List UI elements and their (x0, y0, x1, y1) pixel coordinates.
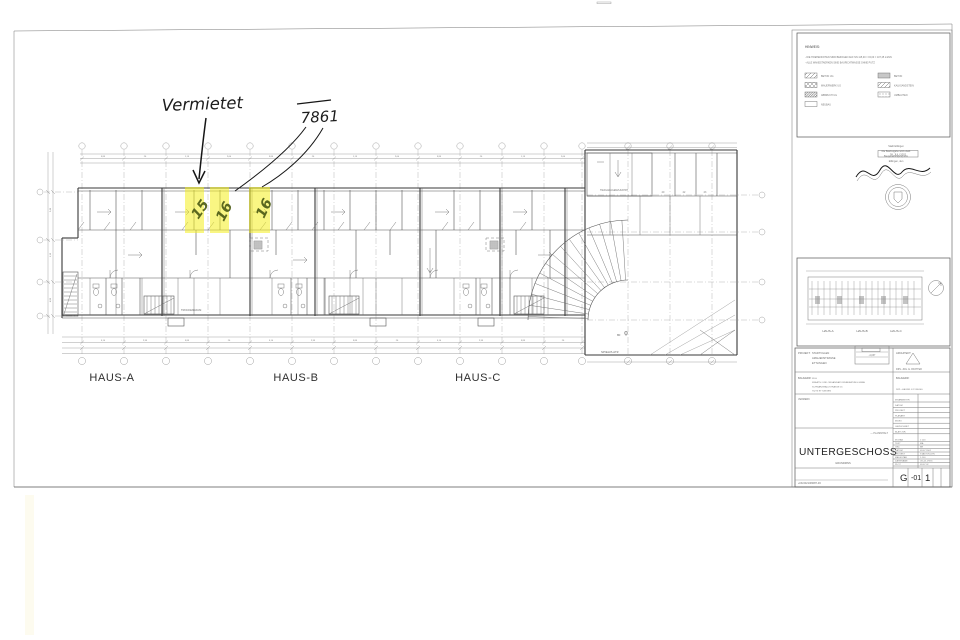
parking-stall-line (531, 294, 589, 310)
info-row-label: PLOT (895, 464, 901, 466)
grid-bubble-bottom (330, 357, 337, 364)
wc-tank (296, 284, 302, 288)
dim-text-top: 3,85 (101, 156, 106, 158)
parking-stall-line (611, 222, 621, 281)
dim-text-top: 26 (480, 156, 483, 158)
info-row-label: PROJEKT (895, 454, 906, 456)
parking-stall-line (579, 233, 609, 285)
bauherr-label: BAUHERR: (798, 376, 812, 380)
keyplan-cell (881, 296, 886, 304)
wc-tank (481, 284, 487, 288)
grid-bubble-top (499, 143, 505, 149)
grid-bubble-left (37, 279, 43, 285)
grid-bubble-top (163, 143, 169, 149)
grid-bubble-top (121, 143, 127, 149)
garage-entrance-label: TIEFGARAGENZUFAHRT (600, 189, 629, 192)
bauherr2-label: BAUHERR: (896, 376, 910, 380)
dim-text-top: 3,85 (269, 156, 274, 158)
index-row-label: PROJEKT (895, 410, 906, 412)
door-arc (270, 270, 278, 278)
grid-bubble-top (415, 143, 421, 149)
door-leaf (520, 222, 526, 230)
sink-fixture (486, 304, 490, 308)
legend-swatch (805, 92, 817, 97)
grid-bubble-top (373, 143, 379, 149)
wc-fixture (112, 289, 117, 296)
dim-text-bottom: 26 (396, 340, 399, 342)
legend-swatch (805, 83, 817, 88)
signature-stroke (856, 166, 930, 177)
dim-text-top: 1,15 (353, 156, 358, 158)
grid-bubble-bottom (372, 357, 379, 364)
plan-title: UNTERGESCHOSS (799, 447, 897, 458)
legend-item-label: KALKSANDSTEIN (894, 85, 914, 88)
info-row-value: MA (920, 442, 924, 445)
info-row-value: STADTVILLEN (920, 453, 935, 456)
grid-bubble-top (625, 143, 631, 149)
parking-stall-line (622, 220, 626, 280)
dim-text-top: 2,60 (561, 156, 566, 158)
door-arc (190, 270, 198, 278)
garage-cell-number: 20 (662, 191, 665, 194)
info-row-value: 1:100 (920, 440, 926, 442)
scan-artifact-strip (25, 495, 34, 635)
wc-fixture (94, 289, 99, 296)
price-overline (297, 100, 331, 104)
architekt-label: ARCHITEKT: (896, 351, 911, 355)
dim-text-top: 26 (144, 156, 147, 158)
legend-item-label: UMBAUTEN (894, 94, 908, 97)
haus-b-label: HAUS-B (273, 372, 318, 384)
info-row-label: M.STAB (895, 439, 904, 442)
projekt-label: PROJEKT: (798, 351, 811, 355)
spielplatz-label: SPIELPLATZ (601, 350, 619, 354)
legend-swatch (878, 73, 890, 78)
grid-bubble-right (759, 317, 765, 323)
door-arc (350, 270, 358, 278)
keyplan-haus-label: HAUS-C (890, 329, 902, 333)
grid-bubble-right (759, 279, 765, 285)
bauherr-line: 76275 ETTLINGEN (812, 391, 831, 393)
wc-tank (93, 284, 99, 288)
seal-outer-ring (886, 185, 911, 210)
ramp-inner-arc (588, 280, 628, 320)
info-row-label: DATUM (895, 449, 903, 452)
dim-text-bottom: 2,35 (311, 340, 316, 342)
dim-text-bottom: 5,10 (101, 340, 106, 342)
garage-cell-number: 23 (704, 191, 707, 194)
grid-bubble-bottom (288, 357, 295, 364)
legend-note: - ALLE WANDSTAERKEN SIND BAURICHTMASSE O… (805, 62, 875, 65)
parking-stall-line (535, 283, 591, 305)
projekt-line: STADTVILLEN (812, 351, 829, 355)
grid-bubble-bottom (246, 357, 253, 364)
seal-emblem (894, 192, 902, 203)
grid-bubble-right (759, 229, 765, 235)
projekt-line: AMALIENSTRASSE (812, 356, 836, 360)
grid-bubble-bottom (624, 357, 631, 364)
index-row-label: PLANART (895, 414, 906, 417)
bauherr2-name: DIPL.-KAUFM. K.P. REGEL (896, 388, 924, 391)
index-row-label: GEZEICHNET (895, 426, 910, 428)
grid-bubble-right (759, 192, 765, 198)
dim-text-bottom: 3,85 (521, 340, 526, 342)
keyplan-cell (903, 296, 908, 304)
level-sketch-inner (862, 348, 880, 352)
dim-text-top: 2,60 (395, 156, 400, 158)
vermietet-note: Vermietet (161, 93, 243, 115)
dim-text-bottom: 5,10 (269, 340, 274, 342)
dim-text-bottom: 26 (562, 340, 565, 342)
wc-fixture (464, 289, 469, 296)
legend-note: - DIE HOEHENKOTEN SIND BEZOGEN AUF NN 11… (805, 56, 892, 59)
scan-artifact-top (597, 2, 611, 4)
sink-fixture (116, 304, 120, 308)
grid-bubble-left (37, 189, 43, 195)
dim-text-top: 2,60 (227, 156, 232, 158)
info-row-label: MASSSTAB (895, 456, 907, 459)
keyplan-cell (815, 296, 820, 304)
stamp-text-line: Stadt Ettlingen (888, 145, 904, 148)
grid-bubble-top (709, 143, 715, 149)
right-column-frame (792, 30, 952, 487)
info-row-value: BR (920, 447, 923, 449)
plan-subtitle: GRUNDRISS (835, 461, 851, 465)
dim-text-bottom: 5,10 (437, 340, 442, 342)
entry-bump (370, 318, 386, 326)
sink-fixture (468, 304, 472, 308)
dim-text-top: 1,15 (521, 156, 526, 158)
index-row-label: MITARBEITER (895, 399, 910, 402)
slope-line (650, 300, 735, 355)
legend-item-label: NEUBAU (821, 104, 831, 107)
legend-item-label: ABBRUCH UG (821, 94, 837, 97)
door-leaf (78, 222, 84, 230)
entry-bump (168, 318, 184, 326)
dim-text-left: 4,85 (50, 297, 52, 302)
legend-item-label: BETON (894, 75, 902, 78)
keyplan-haus-label: HAUS-B (856, 329, 867, 333)
compass-needle (931, 283, 941, 293)
info-row-value: 09.07.02 (920, 464, 929, 466)
grid-bubble-top (579, 143, 585, 149)
wc-fixture (279, 289, 284, 296)
sheet-code-1: 1 (925, 473, 930, 484)
bauherr-line: KREATIV- UND ORGANISATIONSBERATUNG GMBH (812, 381, 865, 384)
level-value: -4,037 (869, 354, 876, 357)
legend-swatch (878, 92, 890, 97)
legend-swatch (805, 73, 817, 78)
wc-fixture (482, 289, 487, 296)
info-row-label: GEZ. (895, 447, 900, 449)
grid-bubble-bottom (414, 357, 421, 364)
door-leaf (390, 222, 396, 230)
parking-stall-line (560, 246, 601, 290)
grid-bubble-top (331, 143, 337, 149)
dim-text-top: 26 (312, 156, 315, 158)
slope-line (665, 315, 735, 355)
projekt-line: ETTLINGEN (812, 361, 827, 365)
keyplan-haus-label: HAUS-A (822, 329, 833, 333)
info-row-value: UG-01.DWG (920, 461, 933, 463)
bauherr-line: WLH (812, 378, 817, 380)
grid-bubble-bottom (578, 357, 585, 364)
grid-bubble-top (205, 143, 211, 149)
door-leaf (468, 222, 474, 230)
door-leaf (130, 222, 136, 230)
door-leaf (364, 222, 370, 230)
door-leaf (442, 222, 448, 230)
grid-bubble-bottom (162, 357, 169, 364)
grid-bubble-top (247, 143, 253, 149)
floor-plan: HAUS-A HAUS-B HAUS-C SPIELPLATZ TROCKENR… (37, 143, 765, 384)
dim-text-bottom: 3,85 (185, 340, 190, 342)
door-leaf (286, 222, 292, 230)
sheet-code-g: G (900, 473, 907, 484)
parking-stall-line (569, 239, 604, 288)
doc-number: +NU/0/21/06087-33 (798, 481, 821, 485)
grid-bubble-left (37, 313, 43, 319)
grid-bubble-top (541, 143, 547, 149)
grid-bubble-left (37, 237, 43, 243)
area-mark: 80 (617, 333, 621, 337)
grid-bubble-top (667, 143, 673, 149)
parking-stall-line (553, 254, 598, 293)
trockenraum-label: TROCKENRAUM (181, 308, 201, 312)
price-note: 7861 (300, 107, 339, 127)
parking-stall-line (529, 305, 588, 314)
info-row-value: 1:100 (920, 457, 926, 459)
dim-text-bottom: 3,85 (353, 340, 358, 342)
wc-tank (463, 284, 469, 288)
haus-c-label: HAUS-C (455, 372, 501, 384)
dim-text-bottom: 26 (228, 340, 231, 342)
wc-tank (278, 284, 284, 288)
sink-fixture (301, 304, 305, 308)
legend-item-label: MAUERWERK UG (821, 85, 841, 88)
sink-fixture (283, 304, 287, 308)
sink-fixture (98, 304, 102, 308)
stamp-date: 09. JULI 2002 (890, 153, 907, 157)
dim-text-bottom: 2,35 (479, 340, 484, 342)
dim-text-bottom: 2,35 (143, 340, 148, 342)
dim-text-left: 2,40 (50, 207, 52, 212)
grid-bubble-bottom (120, 357, 127, 364)
index-row-label: DATUM (895, 404, 903, 407)
architekt-name: DIPL.-ING. E. RICHTER (896, 368, 922, 371)
dim-text-left: 1,15 (50, 252, 52, 257)
entry-bump (478, 318, 494, 326)
door-leaf (104, 222, 110, 230)
vermerk-label: VERMERK (798, 398, 810, 401)
sheet-code-01: -01 (911, 475, 921, 482)
info-row-label: DATEINAME (895, 460, 908, 463)
keyplan-cell (837, 296, 842, 304)
grid-bubble-bottom (666, 357, 673, 364)
drawing-canvas: HAUS-A HAUS-B HAUS-C SPIELPLATZ TROCKENR… (0, 0, 960, 640)
door-arc (510, 270, 518, 278)
index-row-label: INDEX (895, 421, 902, 423)
grid-bubble-top (79, 143, 85, 149)
keyplan-cell (859, 296, 864, 304)
garage-cell-number: 22 (683, 191, 686, 194)
legend-title: HINWEIS: (805, 45, 820, 49)
info-row-value: 09.07.2002 (920, 450, 932, 452)
slope-line (680, 330, 735, 355)
legend-item-label: BETON UG (821, 75, 834, 78)
grid-bubble-top (457, 143, 463, 149)
legend-swatch (805, 102, 817, 107)
door-leaf (338, 222, 344, 230)
index-row-label: BLATT-NR. (895, 430, 906, 433)
stamp-text-line: Ettlingen, den (889, 160, 904, 163)
door-arc (110, 270, 118, 278)
dim-text-top: 3,85 (437, 156, 442, 158)
grid-bubble-bottom (78, 357, 85, 364)
scanned-plan-sheet: HAUS-A HAUS-B HAUS-C SPIELPLATZ TROCKENR… (0, 0, 960, 640)
haus-a-label: HAUS-A (89, 372, 134, 384)
grid-bubble-bottom (708, 357, 715, 364)
legend-swatch (878, 83, 890, 88)
grid-bubble-bottom (456, 357, 463, 364)
info-row-label: TEXT (895, 443, 901, 445)
plan-note: — PLANINHALT (870, 432, 888, 435)
grid-bubble-bottom (204, 357, 211, 364)
arrow-line (199, 118, 206, 179)
dim-text-top: 1,15 (185, 156, 190, 158)
bauherr-line: SCHWARZWALDSTRASSE 16 (812, 385, 843, 388)
grid-bubble-bottom (540, 357, 547, 364)
seal-inner-ring (889, 188, 908, 207)
title-block-column: HINWEIS: UNTERGESCHOSS GRUNDRISS — PLANI… (792, 30, 952, 487)
grid-bubble-bottom (498, 357, 505, 364)
wc-fixture (297, 289, 302, 296)
